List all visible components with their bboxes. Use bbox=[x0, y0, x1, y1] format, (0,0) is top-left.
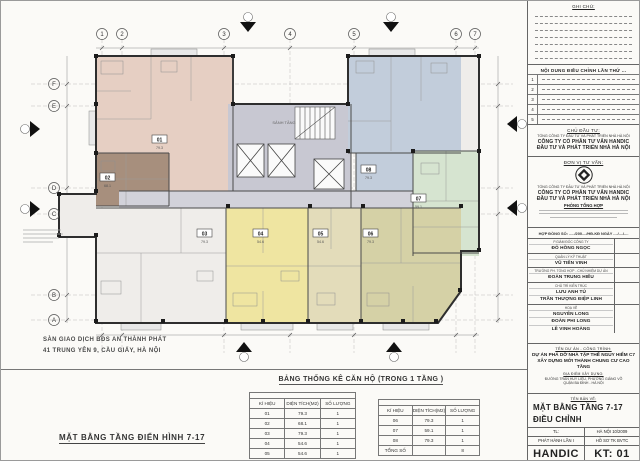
cell-unit-id: 07 bbox=[379, 426, 413, 436]
cell-area: 79.3 bbox=[412, 436, 446, 446]
signature-name: NGUYỄN LONG bbox=[529, 310, 613, 317]
col-header-so-luong: SỐ LƯỢNG bbox=[320, 399, 355, 409]
consultant-parent: TỔNG CÔNG TY ĐẦU TƯ VÀ PHÁT TRIỂN NHÀ HÀ… bbox=[531, 185, 636, 190]
revision-title: NỘI DUNG ĐIỀU CHỈNH LẦN THỨ ... bbox=[528, 68, 639, 73]
grid-bubble: 4 bbox=[285, 29, 296, 40]
cell-count: 1 bbox=[320, 419, 355, 429]
project-section: TÊN DỰ ÁN - CÔNG TRÌNH: DỰ ÁN PHÁ DỠ NHÀ… bbox=[528, 344, 639, 394]
svg-text:D: D bbox=[52, 186, 57, 192]
note-line bbox=[535, 45, 632, 52]
svg-text:6: 6 bbox=[454, 32, 458, 38]
svg-text:02: 02 bbox=[105, 176, 111, 182]
left-wing-rooms bbox=[59, 194, 96, 237]
unit-stats-table-right: KÍ HIỆU DIỆN TÍCH(M2) SỐ LƯỢNG 06 79.3 1 bbox=[378, 399, 480, 456]
revision-dash-line bbox=[542, 89, 635, 90]
signature-left: TRƯỞNG PH. TỔNG HỢP - CHỦ NHIỆM DỰ ÁNĐOÀ… bbox=[528, 268, 614, 282]
signature-left: QUẢN LÝ KỸ THUẬTVŨ TIẾN VINH bbox=[528, 254, 614, 268]
unit-05-region bbox=[308, 208, 361, 323]
signature-row: CHỦ TRÌ KIẾN TRÚCLƯU ANH TÚTRẦN THƯỢNG Đ… bbox=[528, 283, 639, 305]
table-row: 06 79.3 1 bbox=[379, 416, 480, 426]
svg-text:79.3: 79.3 bbox=[201, 240, 208, 244]
revision-dash-line bbox=[542, 119, 635, 120]
sheet-name-section: TÊN BẢN VẼ: MẶT BẰNG TẦNG 7-17 ĐIỀU CHỈN… bbox=[528, 394, 639, 428]
revision-row: 5 bbox=[528, 114, 639, 124]
svg-text:79.3: 79.3 bbox=[365, 176, 372, 180]
svg-text:E: E bbox=[52, 104, 56, 110]
consultant-dept: PHÒNG TỔNG HỢP bbox=[531, 203, 636, 208]
section-marker-icon bbox=[21, 201, 41, 217]
svg-text:01: 01 bbox=[157, 138, 163, 144]
svg-text:1: 1 bbox=[100, 32, 104, 38]
section-marker-icon bbox=[21, 121, 41, 137]
signature-name: ĐOÀN PHI LONG bbox=[529, 317, 613, 324]
revision-number: 5 bbox=[528, 115, 538, 124]
sheet-name-heading: TÊN BẢN VẼ: bbox=[531, 397, 636, 401]
svg-text:3: 3 bbox=[222, 32, 226, 38]
signature-left: HOẠ VẼNGUYỄN LONGĐOÀN PHI LONGLÊ VINH HO… bbox=[528, 305, 614, 333]
contract-row: HỢP ĐỒNG SỐ: ...../200..../HĐ-KĐ NGÀY ..… bbox=[528, 228, 639, 239]
svg-text:54.6: 54.6 bbox=[317, 240, 324, 244]
broker-note-line2: 41 TRUNG YÊN 9, CẦU GIẤY, HÀ NỘI bbox=[43, 346, 167, 357]
cell-area: 79.3 bbox=[285, 429, 320, 439]
unit-stats-table-left: KÍ HIỆU DIỆN TÍCH(M2) SỐ LƯỢNG 01 79.3 1 bbox=[249, 392, 356, 459]
grid-bubble: 2 bbox=[117, 29, 128, 40]
top-right-rooms bbox=[461, 56, 479, 151]
site-heading: ĐỊA ĐIỂM XÂY DỰNG: bbox=[531, 372, 636, 376]
address-line bbox=[539, 210, 627, 211]
cell-area: 68.1 bbox=[285, 419, 320, 429]
cell-area bbox=[412, 446, 446, 456]
svg-text:F: F bbox=[52, 82, 56, 88]
grid-bubble: 5 bbox=[349, 29, 360, 40]
table-row: TỔNG SỐ 8 bbox=[379, 446, 480, 456]
signature-row: HOẠ VẼNGUYỄN LONGĐOÀN PHI LONGLÊ VINH HO… bbox=[528, 305, 639, 333]
section-marker-icon bbox=[240, 13, 256, 33]
handico-logo-icon bbox=[575, 166, 593, 184]
cell-count: 1 bbox=[320, 429, 355, 439]
svg-text:B: B bbox=[52, 293, 56, 299]
svg-text:79.3: 79.3 bbox=[156, 146, 163, 150]
signature-left: CHỦ TRÌ KIẾN TRÚCLƯU ANH TÚTRẦN THƯỢNG Đ… bbox=[528, 283, 614, 304]
section-marker-icon bbox=[507, 116, 527, 132]
place-date: HÀ NỘI 10/2009 bbox=[585, 428, 639, 437]
cell-count: 1 bbox=[320, 439, 355, 449]
cell-count: 1 bbox=[446, 416, 480, 426]
svg-text:07: 07 bbox=[416, 197, 422, 203]
issue-label: PHÁT HÀNH LẦN I bbox=[528, 437, 585, 446]
investor-parent: TỔNG CÔNG TY ĐẦU TƯ VÀ PHÁT TRIỂN NHÀ HÀ… bbox=[531, 134, 636, 139]
stairs bbox=[295, 107, 335, 139]
section-marker-icon bbox=[383, 13, 399, 33]
unit-regions bbox=[59, 56, 479, 323]
cell-count: 1 bbox=[320, 449, 355, 459]
svg-text:03: 03 bbox=[202, 232, 208, 238]
signature-name: LƯU ANH TÚ bbox=[529, 288, 613, 295]
drawing-sheet: SẢNH TẦNG 1 2 3 4 5 6 7 F E D C B A bbox=[0, 0, 640, 461]
svg-text:7: 7 bbox=[473, 32, 477, 38]
signature-row: QUẢN LÝ KỸ THUẬTVŨ TIẾN VINH bbox=[528, 254, 639, 269]
project-heading: TÊN DỰ ÁN - CÔNG TRÌNH: bbox=[531, 347, 636, 351]
unit-08-region bbox=[348, 56, 461, 153]
cell-unit-id: 04 bbox=[250, 439, 285, 449]
investor-heading: CHỦ ĐẦU TƯ: bbox=[531, 128, 636, 133]
cell-count: 8 bbox=[446, 446, 480, 456]
table-row: 07 59.1 1 bbox=[379, 426, 480, 436]
signature-space bbox=[614, 239, 639, 253]
note-line bbox=[535, 17, 632, 24]
section-marker-icon bbox=[386, 342, 402, 362]
project-name-line2: XÂY DỰNG MỚI THÀNH CHUNG CƯ CAO TẦNG bbox=[531, 358, 636, 370]
sheet-name-line1: MẶT BẰNG TẦNG 7-17 bbox=[531, 402, 636, 414]
consultant-heading: ĐƠN VỊ TƯ VẤN: bbox=[531, 160, 636, 165]
col-header-ki-hieu: KÍ HIỆU bbox=[250, 399, 285, 409]
signature-name: VŨ TIẾN VINH bbox=[529, 259, 613, 266]
cell-area: 54.6 bbox=[285, 439, 320, 449]
sheet-name-line2: ĐIỀU CHỈNH bbox=[531, 414, 636, 426]
revision-rows: 1 2 3 4 bbox=[528, 74, 639, 124]
col-header-dien-tich: DIỆN TÍCH(M2) bbox=[412, 406, 446, 416]
svg-text:59.1: 59.1 bbox=[415, 205, 422, 209]
svg-text:08: 08 bbox=[366, 168, 372, 174]
cell-count: 1 bbox=[446, 436, 480, 446]
signature-section: P.GIÁM ĐỐC CÔNG TYĐỖ HỒNG NGỌCQUẢN LÝ KỸ… bbox=[528, 239, 639, 344]
address-line bbox=[550, 217, 617, 218]
title-block-footer: TL: HÀ NỘI 10/2009 PHÁT HÀNH LẦN I HỒ SƠ… bbox=[528, 428, 639, 461]
cell-unit-id: TỔNG SỐ bbox=[379, 446, 413, 456]
revision-dash-line bbox=[542, 99, 635, 100]
table-row: 08 79.3 1 bbox=[379, 436, 480, 446]
revision-number: 4 bbox=[528, 105, 538, 114]
broker-note: SÀN GIAO DỊCH BĐS AN THÀNH PHÁT 41 TRUNG… bbox=[43, 335, 167, 357]
revision-row: 3 bbox=[528, 94, 639, 104]
revision-row: 2 bbox=[528, 84, 639, 94]
svg-text:4: 4 bbox=[288, 32, 292, 38]
signature-row: TRƯỞNG PH. TỔNG HỢP - CHỦ NHIỆM DỰ ÁNĐOÀ… bbox=[528, 268, 639, 283]
unit-statistics-strip: BẢNG THỐNG KÊ CĂN HỘ (TRONG 1 TẦNG ) KÍ … bbox=[1, 369, 529, 461]
table-header-row: KÍ HIỆU DIỆN TÍCH(M2) SỐ LƯỢNG bbox=[250, 399, 356, 409]
scale-label: TL: bbox=[528, 428, 585, 437]
consultant-name2: ĐẦU TƯ VÀ PHÁT TRIỂN NHÀ HÀ NỘI bbox=[531, 196, 636, 202]
svg-text:04: 04 bbox=[258, 232, 264, 238]
revision-number: 3 bbox=[528, 95, 538, 104]
stats-table-title-text: BẢNG THỐNG KÊ CĂN HỘ (TRONG 1 TẦNG ) bbox=[279, 376, 444, 385]
cell-area: 79.3 bbox=[412, 416, 446, 426]
table-header-row: KÍ HIỆU DIỆN TÍCH(M2) SỐ LƯỢNG bbox=[379, 406, 480, 416]
note-line bbox=[535, 10, 632, 17]
sheet-number: KT: 01 bbox=[585, 446, 639, 461]
svg-text:79.3: 79.3 bbox=[367, 240, 374, 244]
revision-dash-line bbox=[542, 109, 635, 110]
note-line bbox=[535, 38, 632, 45]
svg-text:54.6: 54.6 bbox=[257, 240, 264, 244]
svg-text:2: 2 bbox=[120, 32, 124, 38]
cell-area: 79.3 bbox=[285, 409, 320, 419]
revision-number: 2 bbox=[528, 85, 538, 94]
cell-count: 1 bbox=[320, 409, 355, 419]
signature-row: P.GIÁM ĐỐC CÔNG TYĐỖ HỒNG NGỌC bbox=[528, 239, 639, 254]
brand-label: HANDIC bbox=[528, 446, 585, 461]
unit-03-region bbox=[96, 208, 226, 323]
col-header-so-luong: SỐ LƯỢNG bbox=[446, 406, 480, 416]
address-line bbox=[539, 213, 627, 214]
svg-text:68.1: 68.1 bbox=[104, 184, 111, 188]
col-header-dien-tich: DIỆN TÍCH(M2) bbox=[285, 399, 320, 409]
signature-name: ĐỖ HỒNG NGỌC bbox=[529, 244, 613, 251]
grid-bubble: 3 bbox=[219, 29, 230, 40]
floor-plan-svg: SẢNH TẦNG 1 2 3 4 5 6 7 F E D C B A bbox=[1, 1, 529, 363]
investor-name2: ĐẦU TƯ VÀ PHÁT TRIỂN NHÀ HÀ NỘI bbox=[531, 145, 636, 151]
revision-row: 1 bbox=[528, 74, 639, 84]
table-row: 03 79.3 1 bbox=[250, 429, 356, 439]
table-row: 01 79.3 1 bbox=[250, 409, 356, 419]
revision-row: 4 bbox=[528, 104, 639, 114]
consultant-section: ĐƠN VỊ TƯ VẤN: TỔNG CÔNG TY ĐẦU TƯ VÀ PH… bbox=[528, 157, 639, 228]
signature-name: ĐOÀN TRUNG HIẾU bbox=[529, 273, 613, 280]
grid-bubble: 7 bbox=[470, 29, 481, 40]
notes-title: GHI CHÚ: bbox=[531, 4, 636, 9]
investor-name1: CÔNG TY CỔ PHẦN TƯ VẤN HANDIC bbox=[531, 139, 636, 145]
signature-left: P.GIÁM ĐỐC CÔNG TYĐỖ HỒNG NGỌC bbox=[528, 239, 614, 253]
title-block: GHI CHÚ: NỘI DUNG ĐIỀU CHỈNH LẦN THỨ ...… bbox=[527, 1, 639, 461]
svg-text:05: 05 bbox=[318, 232, 324, 238]
signature-role: TRƯỞNG PH. TỔNG HỢP - CHỦ NHIỆM DỰ ÁN bbox=[529, 269, 613, 273]
signature-name: TRẦN THƯỢNG ĐIỆP LINH bbox=[529, 295, 613, 302]
revision-dash-line bbox=[542, 79, 635, 80]
signature-space bbox=[614, 305, 639, 333]
svg-text:5: 5 bbox=[352, 32, 356, 38]
signature-rows: P.GIÁM ĐỐC CÔNG TYĐỖ HỒNG NGỌCQUẢN LÝ KỸ… bbox=[528, 239, 639, 333]
grid-bubbles-top: 1 2 3 4 5 6 7 bbox=[97, 29, 481, 40]
section-marker-icon bbox=[507, 200, 527, 216]
cell-unit-id: 06 bbox=[379, 416, 413, 426]
revision-number: 1 bbox=[528, 75, 538, 84]
notes-section: GHI CHÚ: bbox=[528, 1, 639, 65]
note-line bbox=[535, 24, 632, 31]
cell-area: 59.1 bbox=[412, 426, 446, 436]
consultant-name1: CÔNG TY CỔ PHẦN TƯ VẤN HANDIC bbox=[531, 190, 636, 196]
svg-text:A: A bbox=[52, 318, 56, 324]
table-row: 05 54.6 1 bbox=[250, 449, 356, 459]
note-line bbox=[535, 31, 632, 38]
revision-section: NỘI DUNG ĐIỀU CHỈNH LẦN THỨ ... 1 2 3 bbox=[528, 65, 639, 125]
stats-table-title: BẢNG THỐNG KÊ CĂN HỘ (TRONG 1 TẦNG ) bbox=[211, 376, 511, 383]
grid-bubble: 1 bbox=[97, 29, 108, 40]
cell-area: 54.6 bbox=[285, 449, 320, 459]
cell-unit-id: 03 bbox=[250, 429, 285, 439]
cell-count: 1 bbox=[446, 426, 480, 436]
corridor-region bbox=[119, 191, 413, 208]
table-row: 04 54.6 1 bbox=[250, 439, 356, 449]
section-marker-icon bbox=[236, 342, 252, 362]
svg-text:06: 06 bbox=[368, 232, 374, 238]
grid-bubble: 6 bbox=[451, 29, 462, 40]
col-header-ki-hieu: KÍ HIỆU bbox=[379, 406, 413, 416]
cell-unit-id: 05 bbox=[250, 449, 285, 459]
signature-name: LÊ VINH HOÀNG bbox=[529, 325, 613, 332]
signature-space bbox=[614, 254, 639, 268]
note-line bbox=[535, 52, 632, 59]
broker-note-line1: SÀN GIAO DỊCH BĐS AN THÀNH PHÁT bbox=[43, 335, 167, 346]
site-line2: QUẬN BA ĐÌNH - HÀ NỘI bbox=[531, 381, 636, 385]
core-label: SẢNH TẦNG bbox=[272, 120, 295, 125]
dossier-label: HỒ SƠ TK BVTC bbox=[585, 437, 639, 446]
signature-space bbox=[614, 268, 639, 282]
cell-unit-id: 02 bbox=[250, 419, 285, 429]
floor-plan-area: SẢNH TẦNG 1 2 3 4 5 6 7 F E D C B A bbox=[1, 1, 529, 461]
investor-section: CHỦ ĐẦU TƯ: TỔNG CÔNG TY ĐẦU TƯ VÀ PHÁT … bbox=[528, 125, 639, 157]
grid-bubbles-left: F E D C B A bbox=[49, 79, 60, 326]
table-row: 02 68.1 1 bbox=[250, 419, 356, 429]
cell-unit-id: 01 bbox=[250, 409, 285, 419]
cell-unit-id: 08 bbox=[379, 436, 413, 446]
svg-text:C: C bbox=[52, 212, 57, 218]
signature-space bbox=[614, 283, 639, 304]
